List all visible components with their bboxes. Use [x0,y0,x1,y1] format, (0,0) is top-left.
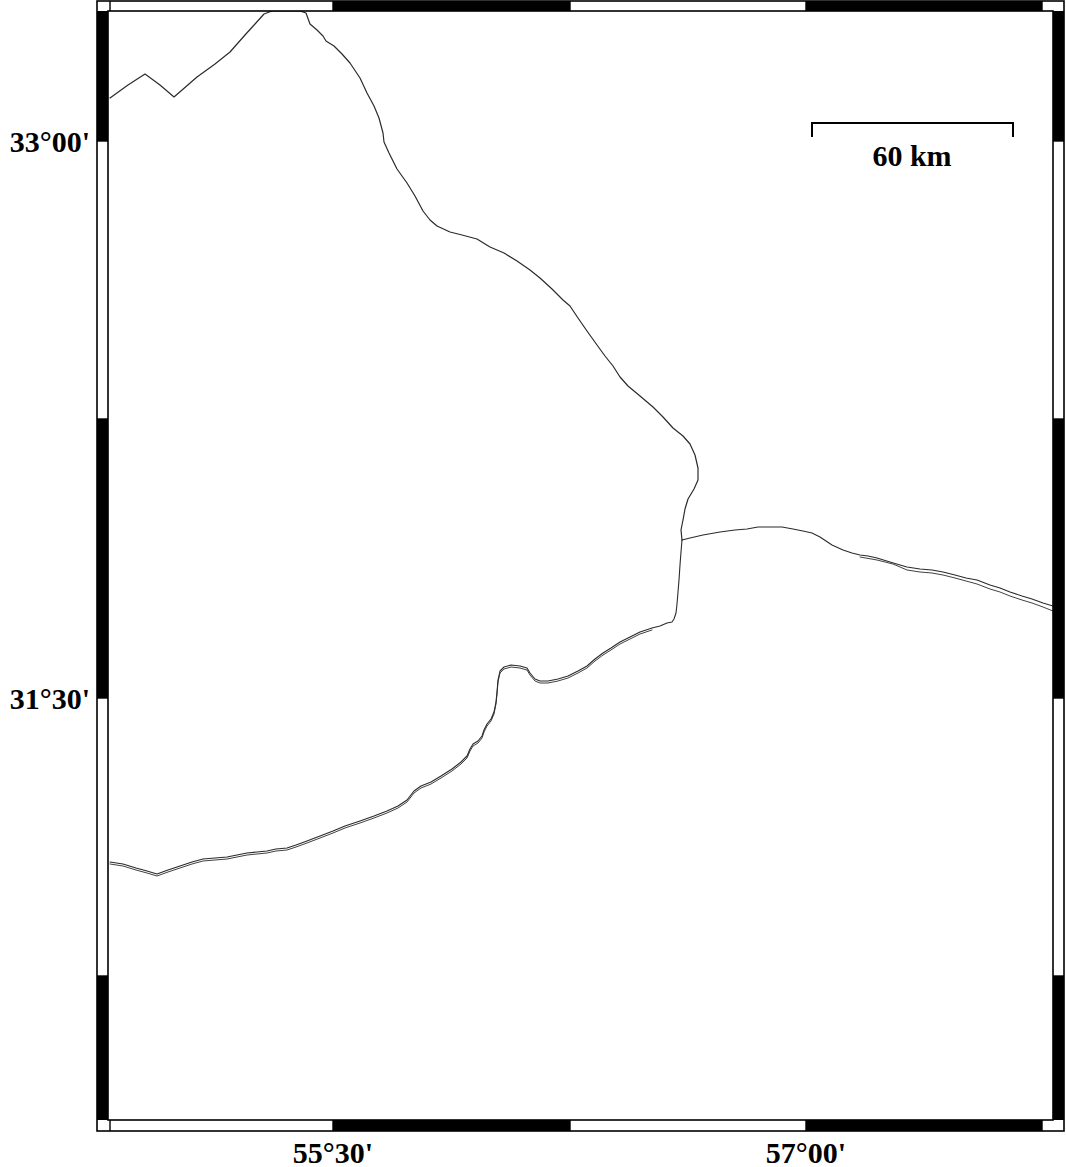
frame-band-right-black [1053,976,1064,1120]
map-canvas: 60 km 33°00' 31°30' 55°30' 57°00' [0,0,1066,1167]
frame-band-bottom-black [333,1120,570,1131]
frame-band-right-black [1053,11,1064,141]
boundary-east-parallel [860,557,1053,611]
boundary-southwest [110,540,682,874]
frame-band-left-black [97,11,108,141]
scale-bar-bracket [812,123,1013,137]
frame-band-left-black [97,419,108,698]
frame-band-left-black [97,976,108,1120]
boundary-north [110,11,698,540]
lat-label-31-30: 31°30' [10,682,90,715]
frame-inner-rect [108,11,1053,1120]
frame-band-right-black [1053,419,1064,698]
boundary-east [682,527,1053,606]
graticule-labels: 33°00' 31°30' 55°30' 57°00' [10,125,847,1167]
lon-label-55-30: 55°30' [293,1136,373,1167]
scale-bar: 60 km [812,123,1013,172]
boundary-southwest-parallel [110,630,652,876]
map-svg: 60 km 33°00' 31°30' 55°30' 57°00' [0,0,1066,1167]
frame-band-top-black [333,1,570,11]
frame-band-top-black [806,1,1042,11]
lon-label-57-00: 57°00' [766,1136,846,1167]
lat-label-33-00: 33°00' [10,125,90,158]
frame-band-bottom-black [806,1120,1042,1131]
scale-bar-label: 60 km [872,139,951,172]
